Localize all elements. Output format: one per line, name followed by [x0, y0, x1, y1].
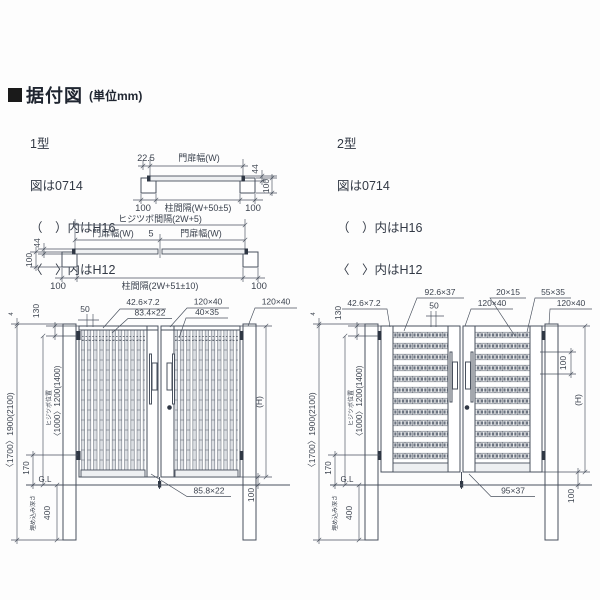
- gate-leaf-plan: [149, 176, 243, 181]
- dim-post2-left: 100: [50, 281, 66, 292]
- elev2-dim-pitch: 100: [558, 356, 568, 370]
- elev2-panel-right: [475, 330, 530, 463]
- elev1-handle-left: [152, 363, 157, 390]
- elev2-post-left: [365, 324, 378, 540]
- dim-post-left: 100: [135, 203, 151, 214]
- elev1-ground-label: G.L: [39, 475, 52, 484]
- elev2-lock-cylinder: [465, 405, 470, 410]
- dim-post-spacing: 柱間隔(W+50±5): [165, 202, 232, 213]
- elev2-bottom-rail-right: [475, 463, 530, 472]
- dim-post2-depth: 100: [24, 253, 34, 267]
- elev2-embed-label: 埋め込み深さ: [331, 495, 339, 531]
- elev1-dim-clearance: 100: [246, 488, 256, 502]
- elev1-dim-50: 50: [80, 304, 90, 314]
- dim-post2-spacing: 柱間隔(2W+51±10): [122, 280, 199, 291]
- elev1-slats-right: [175, 330, 238, 470]
- dim-post-right: 100: [245, 203, 261, 214]
- elev2-label-bottom-rail: 95×37: [501, 486, 525, 496]
- elev1-label-rail: 40×35: [195, 307, 219, 317]
- elevation-type1: 50 42.6×7.2 83.4×22 120×40 40×35 120×40 …: [5, 297, 297, 545]
- elev1-hinge-span: 〈1000〉1200(1400): [53, 365, 62, 440]
- dim-hinge-spacing: ヒジツボ間隔(2W+5): [118, 214, 202, 224]
- elev2-handle-left: [453, 362, 458, 389]
- dim-post-depth: 100: [261, 179, 271, 193]
- elev2-dim-130: 130: [333, 306, 343, 320]
- elev2-label-rail: 55×35: [541, 287, 565, 297]
- elev1-handle-right: [167, 363, 172, 390]
- elev1-lock-cylinder: [167, 405, 172, 410]
- elev1-label-bottom-rail: 85.8×22: [194, 486, 225, 496]
- plan-view-type1: 22.5 門扉幅(W) 44 100 100 柱間隔(W+50±5): [133, 152, 277, 214]
- elev2-handle-right: [466, 362, 471, 389]
- elev2-drop-bolt: [460, 481, 463, 488]
- elev1-label-slat: 42.6×7.2: [126, 297, 160, 307]
- elev1-label-stile: 120×40: [194, 297, 223, 307]
- elev2-ground-label: G.L: [341, 475, 354, 484]
- elev2-panel-left: [393, 330, 448, 463]
- dim-hinge-offset: 22.5: [137, 153, 155, 163]
- dim-gate-width-left: 門扉幅(W): [92, 228, 134, 239]
- dim-gate-width: 門扉幅(W): [178, 152, 220, 163]
- elev1-dim-overall-height: 〈1700〉1900(2100): [5, 392, 15, 472]
- elev2-label-edge: 42.6×7.2: [347, 298, 381, 308]
- elev1-embed-depth: 400: [42, 506, 52, 520]
- installation-diagram-page: 据付図 (単位mm) 1型 図は0714 （ ）内はH16 〈 〉内はH12 2…: [0, 0, 600, 600]
- elev1-slats-left: [81, 330, 145, 470]
- elev2-dim-170: 170: [324, 461, 333, 475]
- elev1-drop-bolt: [158, 481, 161, 488]
- elev1-post-right: [243, 324, 256, 540]
- elev2-dim-cap: 4: [311, 312, 317, 316]
- elev2-dim-clearance: 100: [566, 489, 576, 503]
- elev1-bottom-rail-right: [175, 470, 238, 477]
- elev2-embed-depth: 400: [344, 506, 354, 520]
- elev1-dim-cap: 4: [9, 312, 15, 316]
- elev1-label-post: 120×40: [262, 297, 291, 307]
- dim-center-gap: 5: [148, 229, 153, 239]
- elev2-bottom-rail-left: [393, 463, 448, 472]
- gate-leaf-plan2-right: [162, 249, 246, 254]
- elev2-label-stile: 120×40: [478, 298, 507, 308]
- elev2-dim-50: 50: [429, 301, 439, 311]
- dim-gate-width-right: 門扉幅(W): [180, 228, 222, 239]
- elev1-dim-170: 170: [22, 461, 31, 475]
- elev1-hinge-position-label: ヒジツボ位置: [45, 390, 53, 426]
- gate-leaf-plan2-left: [74, 249, 158, 254]
- elev2-dim-H: (H): [573, 394, 583, 406]
- technical-drawing: 22.5 門扉幅(W) 44 100 100 柱間隔(W+50±5): [0, 0, 600, 600]
- plan-view-type2: ヒジツボ間隔(2W+5) 門扉幅(W) 5 門扉幅(W) 44 100: [24, 214, 267, 292]
- elev1-dim-130: 130: [31, 304, 41, 318]
- elev1-label-slat-wide: 83.4×22: [135, 308, 166, 318]
- elev1-dim-H: (H): [254, 396, 264, 408]
- elev2-dim-overall-height: 〈1700〉1900(2100): [307, 392, 317, 472]
- elev1-embed-label: 埋め込み深さ: [29, 495, 37, 531]
- elev2-hinge-span: 〈1000〉1200(1400): [355, 365, 364, 440]
- elev2-hinge-position-label: ヒジツボ位置: [347, 390, 355, 426]
- elev1-post-left: [63, 324, 76, 540]
- dim-gate-depth: 44: [250, 164, 260, 174]
- elev1-bottom-rail-left: [81, 470, 145, 477]
- elev2-post-right: [545, 324, 558, 540]
- elev2-label-slat: 92.6×37: [425, 287, 456, 297]
- elev2-label-punch: 20×15: [496, 287, 520, 297]
- elev2-label-post: 120×40: [557, 298, 586, 308]
- dim-post2-right: 100: [251, 281, 267, 292]
- dim-gate2-depth: 44: [32, 238, 42, 248]
- elevation-type2: 42.6×7.2 92.6×37 50 20×15 55×35 120×40 1…: [307, 287, 592, 544]
